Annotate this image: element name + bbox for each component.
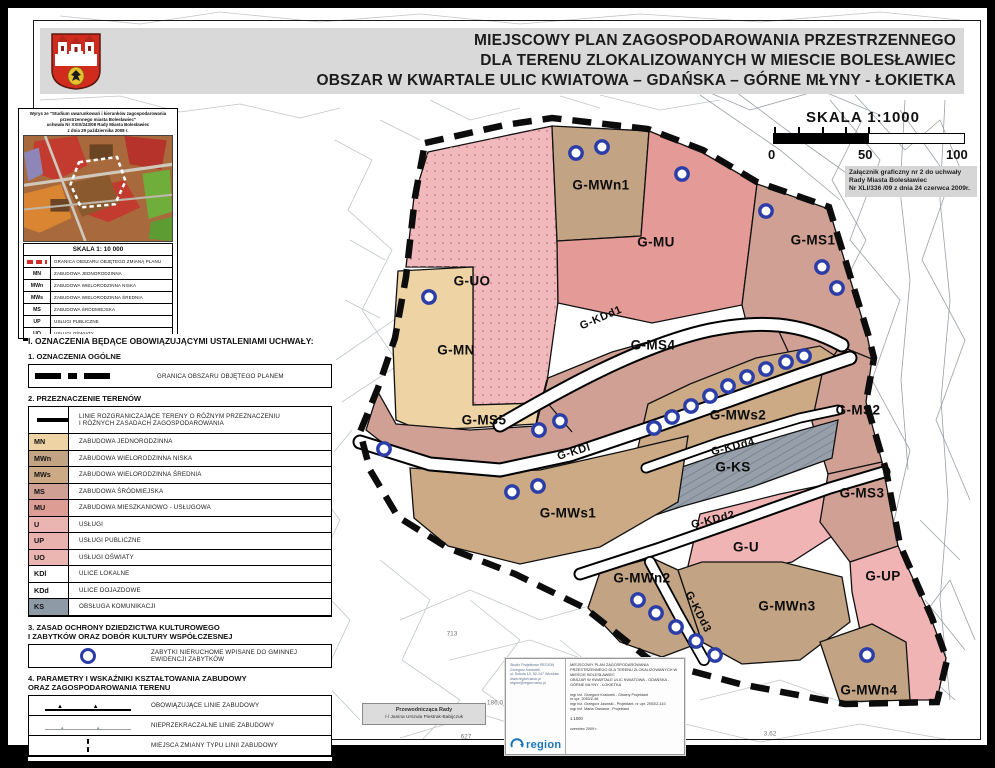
attachment-note: Załącznik graficzny nr 2 do uchwały Rady… (845, 166, 977, 197)
legend-s3-title: 3. ZASAD OCHRONY DZIEDZICTWA KULTUROWEGO… (28, 623, 332, 641)
monument-marker (570, 147, 582, 159)
zone-code-swatch: MU (29, 500, 69, 516)
legend-zone-row: KDd ULICE DOJAZDOWE (29, 583, 331, 600)
study-zone-label: USŁUGI PUBLICZNE (51, 319, 172, 324)
zone-description: OBSŁUGA KOMUNIKACJI (69, 599, 331, 615)
zone-code-swatch: MN (29, 434, 69, 450)
map-zone-label: G-MWn3 (758, 599, 815, 614)
zone-description: USŁUGI PUBLICZNE (69, 533, 331, 549)
legend-zone-row: UP USŁUGI PUBLICZNE (29, 533, 331, 550)
boundary-dash-icon (68, 373, 77, 379)
scale-tick (845, 127, 847, 133)
stamp-scale: 1:1000 (570, 716, 680, 721)
building-line-icon (45, 721, 131, 730)
study-zone-label: ZABUDOWA ŚRÓDMIEJSKA (51, 307, 172, 312)
zone-code-swatch: KS (29, 599, 69, 615)
monument-row: ZABYTKI NIERUCHOME WPISANE DO GMINNEJ EW… (29, 645, 331, 667)
monument-marker (861, 649, 873, 661)
legend-s1-title: 1. OZNACZENIA OGÓLNE (28, 352, 332, 361)
legend-zone-row: KS OBSŁUGA KOMUNIKACJI (29, 599, 331, 616)
parcel-number: 627 (461, 734, 472, 741)
monument-marker (760, 205, 772, 217)
title-line-3: OBSZAR W KWARTALE ULIC KWIATOWA – GDAŃSK… (316, 71, 956, 91)
map-zone-label: G-MN (437, 343, 475, 358)
map-zone-label: G-MWn4 (840, 683, 897, 698)
legend-heading: I. OZNACZENIA BĘDĄCE OBOWIĄZUJĄCYMI USTA… (28, 336, 332, 346)
boundary-dash-icon (35, 373, 61, 379)
monument-label: ZABYTKI NIERUCHOME WPISANE DO GMINNEJ EW… (147, 649, 331, 663)
study-legend-row: UP USŁUGI PUBLICZNE (24, 316, 172, 328)
scale-num-100: 100 (946, 147, 968, 162)
map-zone-label: G-MS1 (791, 233, 836, 248)
region-logo-text: region (526, 739, 561, 751)
parameter-label: MIEJSCA ZMIANY TYPU LINII ZABUDOWY (147, 742, 331, 749)
map-zone-label: G-KS (715, 460, 750, 475)
chairwoman-name: /-/ Janina Urszula Piestrak-Babijczuk (363, 715, 485, 720)
dividing-lines-row: LINIE ROZGRANICZAJĄCE TERENY O RÓŻNYM PR… (29, 407, 331, 434)
stamp-title-line: GÓRNE MŁYNY - ŁOKIETKA (570, 683, 680, 688)
region-logo: region (510, 738, 563, 752)
chairwoman-title: Przewodnicząca Rady (363, 707, 485, 713)
scale-tick (774, 127, 776, 133)
granica-row: GRANICA OBSZARU OBJĘTEGO PLANEM (29, 365, 331, 387)
zone-description: USŁUGI (69, 517, 331, 533)
title-block-stamp: Studio Projektowe REGIONGrzegorz Kosture… (505, 658, 685, 755)
stamp-designers: mgr inż. Grzegorz Kosturek - Główny Proj… (570, 693, 680, 712)
monument-marker (831, 282, 843, 294)
building-line-icon (45, 699, 131, 711)
study-legend-row: MWs ZABUDOWA WIELORODZINNA ŚREDNIA (24, 292, 172, 304)
map-zone-label: G-MS4 (631, 338, 676, 353)
monument-marker (709, 649, 721, 661)
zone-description: ZABUDOWA WIELORODZINNA NISKA (69, 451, 331, 467)
zone-description: ZABUDOWA WIELORODZINNA ŚREDNIA (69, 467, 331, 483)
title-line-1: MIEJSCOWY PLAN ZAGOSPODAROWANIA PRZESTRZ… (316, 31, 956, 51)
region-swoosh-icon (510, 738, 524, 752)
monument-marker (554, 415, 566, 427)
study-zone-code: MWn (24, 280, 51, 291)
legend-zone-row: MN ZABUDOWA JEDNORODZINNA (29, 434, 331, 451)
study-zone-code: MWs (24, 292, 51, 303)
zone-code-swatch: MWn (29, 451, 69, 467)
monument-marker (648, 422, 660, 434)
zone-description: ULICE DOJAZDOWE (69, 583, 331, 599)
attachment-line-3: Nr XLI/336 /09 z dnia 24 czerwca 2009r. (849, 185, 973, 193)
dividing-line-icon (37, 418, 68, 422)
map-zone-label: G-MU (637, 235, 675, 250)
study-zone-code: MS (24, 304, 51, 315)
legend-s1-table: GRANICA OBSZARU OBJĘTEGO PLANEM (28, 364, 332, 388)
study-scale-label: SKALA 1: 10 000 (23, 243, 173, 255)
legend-s4-table: OBOWIĄZUJĄCE LINIE ZABUDOWY NIEPRZEKRACZ… (28, 695, 332, 757)
study-legend-row: MS ZABUDOWA ŚRÓDMIEJSKA (24, 304, 172, 316)
study-zone-code: MN (24, 268, 51, 279)
study-map-image (23, 135, 173, 242)
legend-zone-row: KDl ULICE LOKALNE (29, 566, 331, 583)
granica-label: GRANICA OBSZARU OBJĘTEGO PLANEM (153, 373, 331, 380)
parameter-label: OBOWIĄZUJĄCE LINIE ZABUDOWY (147, 702, 331, 709)
map-zone-label: G-MWn1 (572, 178, 629, 193)
parcel-number: 186,0 (487, 700, 503, 707)
scale-tick (822, 127, 824, 133)
map-zone-label: G-MS2 (836, 403, 881, 418)
scale-bar (773, 133, 965, 144)
study-legend: GRANICA OBSZARU OBJĘTEGO ZMIANĄ PLANU MN… (23, 255, 173, 341)
study-zone-label: ZABUDOWA WIELORODZINNA ŚREDNIA (51, 295, 172, 300)
scale-tick (798, 127, 800, 133)
legend-zone-row: UO USŁUGI OŚWIATY (29, 550, 331, 567)
stamp-date: czerwiec 2009 r. (570, 727, 680, 731)
parcel-number: 3,62 (764, 731, 777, 738)
attachment-line-1: Załącznik graficzny nr 2 do uchwały (849, 169, 973, 177)
monument-marker (596, 141, 608, 153)
building-line-icon (87, 739, 89, 752)
legend-s3-table: ZABYTKI NIERUCHOME WPISANE DO GMINNEJ EW… (28, 644, 332, 668)
monument-marker (666, 411, 678, 423)
parameter-row: OBOWIĄZUJĄCE LINIE ZABUDOWY (29, 696, 331, 716)
monument-marker (780, 356, 792, 368)
study-zone-label: ZABUDOWA WIELORODZINNA NISKA (51, 283, 172, 288)
monument-marker (798, 350, 810, 362)
monument-marker (704, 390, 716, 402)
scale-tick (868, 127, 870, 133)
legend-s2-table: LINIE ROZGRANICZAJĄCE TERENY O RÓŻNYM PR… (28, 406, 332, 617)
scale-bar-filled (774, 134, 869, 143)
monument-marker (532, 480, 544, 492)
legend-zone-row: MWs ZABUDOWA WIELORODZINNA ŚREDNIA (29, 467, 331, 484)
zone-code-swatch: KDl (29, 566, 69, 582)
monument-ring-icon (80, 648, 96, 664)
study-zone-code: UP (24, 316, 51, 327)
monument-marker (676, 168, 688, 180)
legend-zone-row: MWn ZABUDOWA WIELORODZINNA NISKA (29, 451, 331, 468)
map-zone-label: G-MWs1 (540, 506, 596, 521)
firm-info: Studio Projektowe REGIONGrzegorz Kosture… (510, 663, 563, 686)
boleslawiec-coat-of-arms-icon (50, 32, 102, 90)
zone-code-swatch: MWs (29, 467, 69, 483)
legend-panel: I. OZNACZENIA BĘDĄCE OBOWIĄZUJĄCYMI USTA… (28, 334, 332, 761)
map-zone-label: G-MWs2 (710, 408, 766, 423)
parcel-number: 713 (447, 631, 458, 638)
zone-description: ZABUDOWA ŚRÓDMIEJSKA (69, 484, 331, 500)
legend-zone-row: U USŁUGI (29, 517, 331, 534)
monument-marker (506, 486, 518, 498)
zone-code-swatch: UP (29, 533, 69, 549)
legend-zone-row: MS ZABUDOWA ŚRÓDMIEJSKA (29, 484, 331, 501)
zone-description: ZABUDOWA MIESZKANIOWO - USŁUGOWA (69, 500, 331, 516)
monument-marker (423, 291, 435, 303)
study-excerpt-panel: Wyrys ze "Studium uwarunkowań i kierunkó… (18, 108, 178, 339)
monument-marker (760, 363, 772, 375)
zone-description: ULICE LOKALNE (69, 566, 331, 582)
legend-zone-row: MU ZABUDOWA MIESZKANIOWO - USŁUGOWA (29, 500, 331, 517)
attachment-line-2: Rady Miasta Bolesławiec (849, 177, 973, 185)
red-dash-icon (27, 260, 47, 264)
scale-num-50: 50 (858, 147, 872, 162)
study-header-line: z dnia 29 października 2008 r. (22, 128, 174, 134)
stamp-title: MIEJSCOWY PLAN ZAGOSPODAROWANIAPRZESTRZE… (570, 663, 680, 688)
parameter-label: NIEPRZEKRACZALNE LINIE ZABUDOWY (147, 722, 331, 729)
zone-description: USŁUGI OŚWIATY (69, 550, 331, 566)
parameter-row: MIEJSCA ZMIANY TYPU LINII ZABUDOWY (29, 736, 331, 756)
boundary-dash-icon (84, 373, 110, 379)
study-legend-granica-row: GRANICA OBSZARU OBJĘTEGO ZMIANĄ PLANU (24, 256, 172, 268)
monument-marker (816, 261, 828, 273)
scale-num-0: 0 (768, 147, 775, 162)
map-zone-label: G-UP (865, 569, 900, 584)
zone-description: ZABUDOWA JEDNORODZINNA (69, 434, 331, 450)
map-zone-label: G-U (733, 540, 759, 555)
monument-marker (533, 424, 545, 436)
monument-marker (670, 621, 682, 633)
stamp-designer-line: mgr inż. Marta Owsiana - Projektant (570, 707, 680, 712)
monument-marker (741, 371, 753, 383)
map-zone-label: G-MWn2 (613, 571, 670, 586)
study-legend-row: MWn ZABUDOWA WIELORODZINNA NISKA (24, 280, 172, 292)
chairwoman-note: Przewodnicząca Rady /-/ Janina Urszula P… (362, 703, 486, 725)
firm-line: region@region.wroc.pl (510, 681, 563, 686)
scale-label: SKALA 1:1000 (806, 109, 920, 126)
zone-code-swatch: UO (29, 550, 69, 566)
legend-s4-title: 4. PARAMETRY I WSKAŹNIKI KSZTAŁTOWANIA Z… (28, 674, 332, 692)
title-band: MIEJSCOWY PLAN ZAGOSPODAROWANIA PRZESTRZ… (40, 28, 964, 94)
monument-marker (650, 607, 662, 619)
monument-marker (378, 443, 390, 455)
monument-marker (632, 594, 644, 606)
monument-marker (722, 380, 734, 392)
study-zone-label: ZABUDOWA JEDNORODZINNA (51, 271, 172, 276)
legend-s2-title: 2. PRZEZNACZENIE TERENÓW (28, 394, 332, 403)
map-zone-label: G-MS5 (462, 413, 507, 428)
monument-marker (690, 635, 702, 647)
study-granica-label: GRANICA OBSZARU OBJĘTEGO ZMIANĄ PLANU (51, 259, 172, 264)
parameter-row: NIEPRZEKRACZALNE LINIE ZABUDOWY (29, 716, 331, 736)
monument-marker (685, 400, 697, 412)
dividing-lines-label: LINIE ROZGRANICZAJĄCE TERENY O RÓŻNYM PR… (79, 413, 280, 428)
title-line-2: DLA TERENU ZLOKALIZOWANYCH W MIESCIE BOL… (316, 51, 956, 71)
zone-code-swatch: MS (29, 484, 69, 500)
map-zone-label: G-UO (454, 274, 491, 289)
zone-code-swatch: U (29, 517, 69, 533)
plan-title: MIEJSCOWY PLAN ZAGOSPODAROWANIA PRZESTRZ… (316, 31, 956, 91)
plan-sheet-page: MIEJSCOWY PLAN ZAGOSPODAROWANIA PRZESTRZ… (0, 0, 995, 768)
study-excerpt-header: Wyrys ze "Studium uwarunkowań i kierunkó… (19, 109, 177, 134)
study-legend-row: MN ZABUDOWA JEDNORODZINNA (24, 268, 172, 280)
map-zone-label: G-MS3 (840, 486, 885, 501)
zone-code-swatch: KDd (29, 583, 69, 599)
